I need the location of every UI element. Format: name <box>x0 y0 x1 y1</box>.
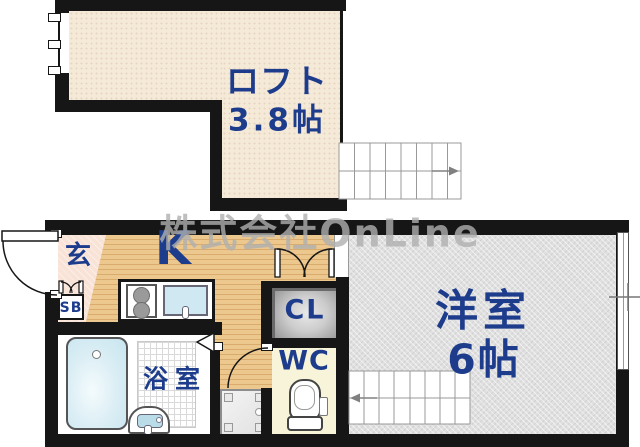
kitchen-sink-icon <box>163 285 208 316</box>
western-room-size-label: 6帖 <box>447 340 521 381</box>
entrance-label: 玄 <box>65 243 91 269</box>
shoe-box-label: SB <box>60 301 83 315</box>
door-jamb <box>261 343 273 351</box>
loft-floor-left <box>69 11 222 100</box>
wall <box>45 292 58 447</box>
window-center-line <box>623 233 624 369</box>
wall <box>261 281 349 288</box>
wall <box>55 100 222 112</box>
bath-sink-icon <box>128 406 170 434</box>
door-jamb <box>210 342 223 351</box>
watermark: 株式会社OnLine <box>159 203 480 258</box>
wall <box>55 0 69 14</box>
toilet-tank <box>287 416 323 431</box>
window-mullion-icon <box>48 40 61 49</box>
loft-size-label: 3.8帖 <box>228 106 326 137</box>
bath-sink-knob <box>156 417 162 423</box>
door-jamb <box>50 290 62 299</box>
wall <box>45 322 222 335</box>
western-room-label: 洋室 <box>435 291 531 334</box>
kitchen-counter <box>118 279 215 322</box>
kitchen-faucet-icon <box>182 306 189 319</box>
pan-foot-icon <box>224 423 233 432</box>
wall <box>261 388 272 434</box>
door-jamb <box>50 229 62 238</box>
wall <box>210 100 222 211</box>
toilet-icon <box>289 379 321 420</box>
wall <box>210 350 220 434</box>
window-mullion-icon <box>48 13 61 22</box>
stairs-up-arrow-icon <box>449 167 459 176</box>
stove-icon <box>126 284 157 318</box>
wall <box>45 434 629 447</box>
wall <box>55 0 346 11</box>
loft-right-wall <box>340 11 343 143</box>
tub-drain-icon <box>92 350 101 359</box>
floor-plan: ロフト 3.8帖 玄 K SB 浴室 CL WC 洋室 6帖 株式会社OnLin… <box>0 0 640 447</box>
bathtub-icon <box>66 337 128 430</box>
bathroom-label: 浴室 <box>143 367 207 392</box>
loft-stairs-icon <box>339 143 461 199</box>
pan-foot-icon <box>224 393 233 402</box>
toilet-label: WC <box>278 348 330 375</box>
loft-label: ロフト <box>226 65 328 98</box>
window-mullion-icon <box>48 66 61 75</box>
toilet-seat <box>294 385 315 410</box>
closet-label: CL <box>284 297 325 324</box>
wall <box>336 277 349 434</box>
toilet-panel <box>319 397 328 416</box>
bedroom-window-icon <box>617 232 629 370</box>
burner-icon <box>133 302 150 319</box>
entrance-door-icon <box>2 231 58 295</box>
